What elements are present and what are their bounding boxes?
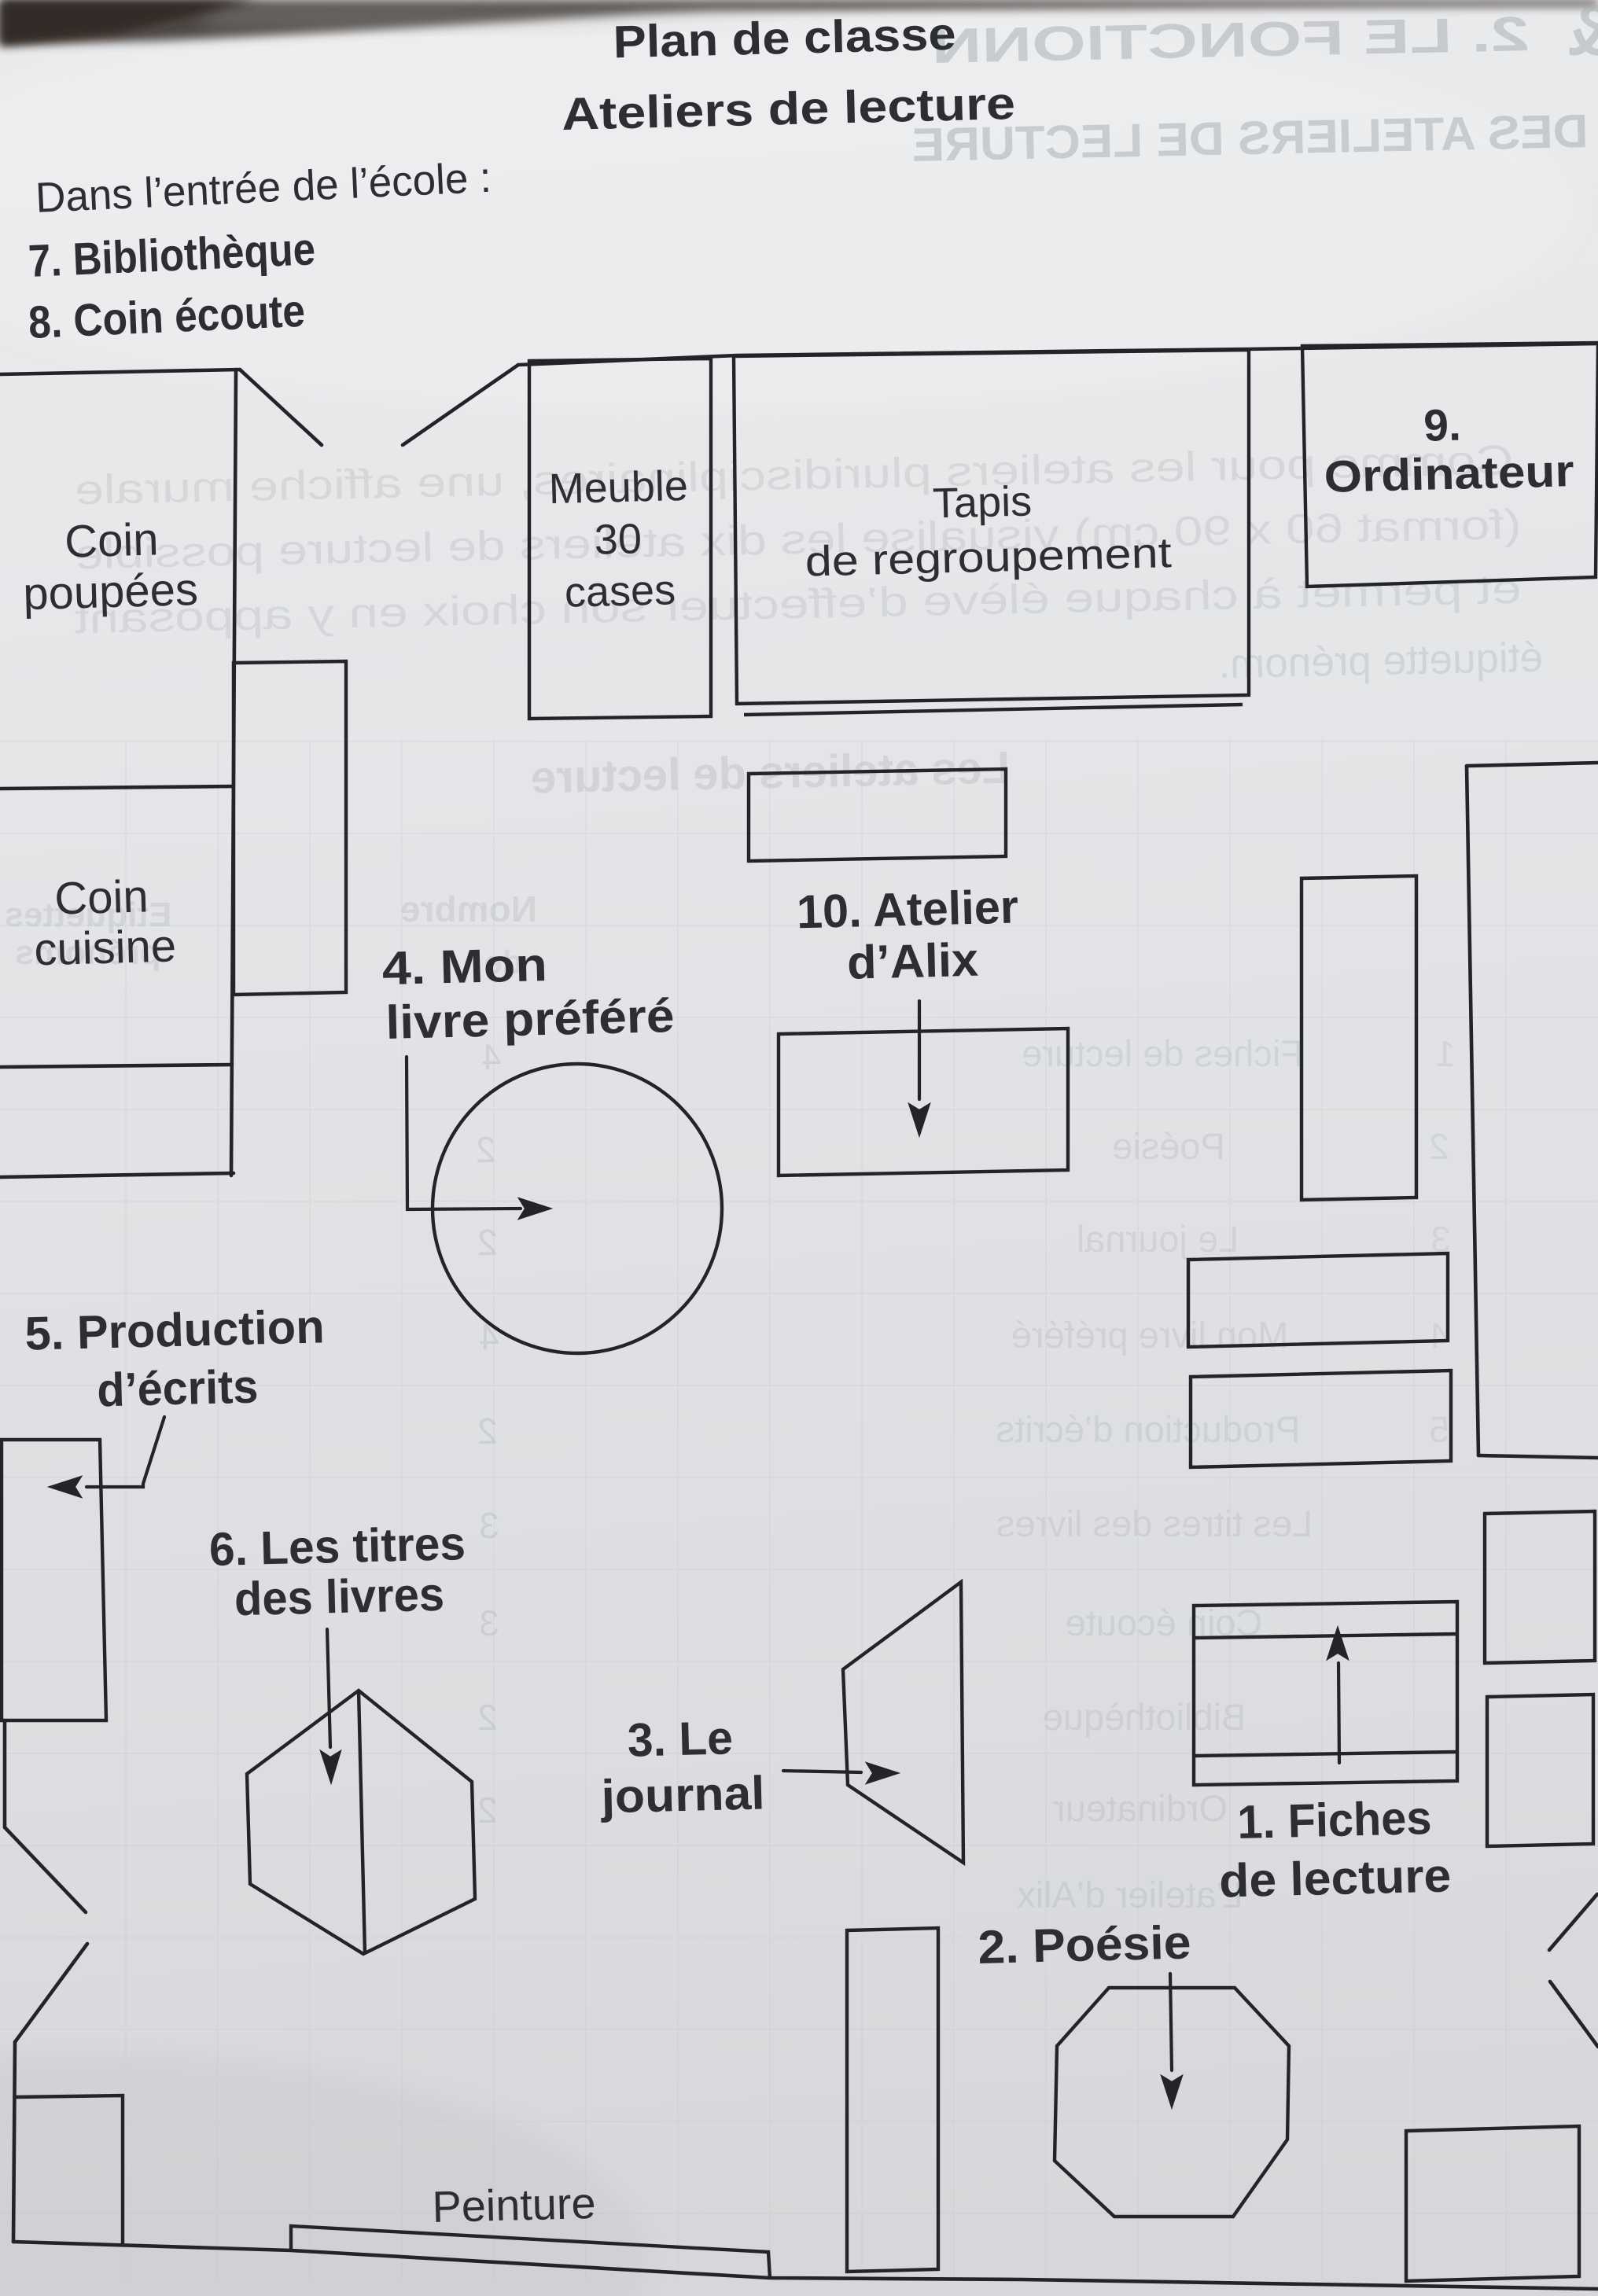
svg-text:livre préféré: livre préféré — [385, 989, 676, 1049]
svg-text:Coin: Coin — [53, 870, 149, 924]
svg-text:Meuble: Meuble — [548, 462, 689, 513]
svg-text:Coin: Coin — [64, 513, 159, 567]
svg-text:3: 3 — [479, 1602, 499, 1643]
svg-text:étiquette prénom.: étiquette prénom. — [1218, 635, 1544, 688]
svg-text:9.: 9. — [1423, 400, 1462, 451]
svg-text:de regroupement: de regroupement — [805, 529, 1172, 585]
svg-text:cases: cases — [564, 566, 676, 616]
svg-text:4. Mon: 4. Mon — [381, 938, 548, 995]
svg-text:Fiches de lecture: Fiches de lecture — [1022, 1032, 1303, 1074]
svg-text:de lecture: de lecture — [1218, 1849, 1452, 1907]
svg-text:Poésie: Poésie — [1112, 1125, 1225, 1167]
svg-text:5: 5 — [1429, 1409, 1449, 1450]
svg-text:30: 30 — [594, 515, 643, 563]
svg-text:1. Fiches: 1. Fiches — [1237, 1791, 1433, 1849]
svg-text:3: 3 — [479, 1505, 499, 1546]
svg-text:d’Alix: d’Alix — [846, 933, 979, 989]
svg-text:des livres: des livres — [234, 1568, 445, 1626]
svg-text:Bibliothèque: Bibliothèque — [1043, 1696, 1246, 1738]
svg-text:Les titres des livres: Les titres des livres — [996, 1503, 1313, 1544]
svg-text:10. Atelier: 10. Atelier — [796, 880, 1019, 938]
svg-text:2: 2 — [477, 1697, 498, 1738]
svg-text:Ordinateur: Ordinateur — [1053, 1787, 1228, 1829]
svg-text:&: & — [1567, 0, 1598, 71]
svg-text:Tapis: Tapis — [932, 477, 1032, 527]
svg-text:Production d’écrits: Production d’écrits — [996, 1408, 1301, 1450]
svg-text:5. Production: 5. Production — [24, 1300, 326, 1360]
svg-text:Nombre: Nombre — [400, 889, 537, 929]
svg-text:2: 2 — [477, 1222, 498, 1263]
svg-text:2: 2 — [477, 1790, 498, 1831]
svg-text:Ordinateur: Ordinateur — [1324, 446, 1574, 502]
svg-text:cuisine: cuisine — [34, 920, 177, 975]
svg-text:Mon livre préféré: Mon livre préféré — [1011, 1314, 1289, 1356]
svg-text:2: 2 — [476, 1129, 496, 1170]
svg-text:3. Le: 3. Le — [627, 1711, 734, 1766]
svg-text:d’écrits: d’écrits — [97, 1360, 260, 1416]
svg-text:1: 1 — [1435, 1033, 1456, 1074]
svg-text:poupées: poupées — [22, 564, 198, 620]
svg-text:Plan de classe: Plan de classe — [613, 9, 956, 68]
svg-text:2: 2 — [477, 1411, 498, 1452]
svg-text:2. Poésie: 2. Poésie — [978, 1915, 1192, 1974]
svg-text:Le journal: Le journal — [1077, 1218, 1239, 1260]
svg-text:Peinture: Peinture — [432, 2178, 596, 2232]
svg-text:journal: journal — [600, 1766, 766, 1823]
svg-text:2: 2 — [1429, 1126, 1449, 1167]
svg-text:L’atelier d’Alix: L’atelier d’Alix — [1017, 1874, 1243, 1915]
svg-text:6. Les titres: 6. Les titres — [208, 1517, 466, 1576]
